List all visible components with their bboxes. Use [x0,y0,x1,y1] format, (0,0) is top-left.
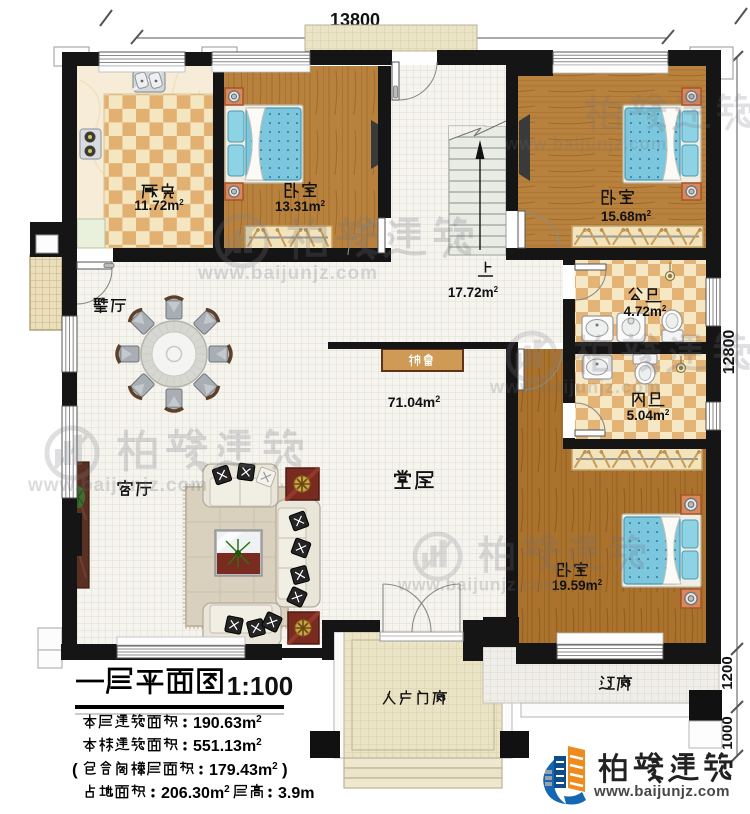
svg-text:206.30m2: 206.30m2 [161,784,230,802]
svg-text:www.baijunjz.com: www.baijunjz.com [593,783,730,800]
svg-text:4.72m2: 4.72m2 [624,304,667,319]
svg-text:5.04m2: 5.04m2 [627,408,670,423]
svg-text:71.04m2: 71.04m2 [388,394,441,410]
svg-text:1:100: 1:100 [227,671,294,701]
svg-text:11.72m2: 11.72m2 [134,198,184,213]
svg-text:www.baijunjz.com: www.baijunjz.com [504,135,667,154]
svg-text:179.43m2: 179.43m2 [209,761,278,779]
svg-text:www.baijunjz.com: www.baijunjz.com [397,576,560,595]
svg-text:www.baijunjz.com: www.baijunjz.com [489,377,661,397]
svg-text:551.13m2: 551.13m2 [193,737,262,755]
svg-text:15.68m2: 15.68m2 [601,209,652,224]
svg-text:): ) [282,760,288,779]
svg-text:www.baijunjz.com: www.baijunjz.com [197,263,378,284]
svg-text:190.63m2: 190.63m2 [193,714,262,732]
svg-text:(: ( [72,760,78,779]
svg-text:1200: 1200 [719,656,736,689]
svg-text:13.31m2: 13.31m2 [275,199,326,214]
svg-text:www.baijunjz.com: www.baijunjz.com [27,475,208,496]
svg-text:3.9m: 3.9m [278,785,314,802]
svg-text:17.72m2: 17.72m2 [448,285,499,300]
